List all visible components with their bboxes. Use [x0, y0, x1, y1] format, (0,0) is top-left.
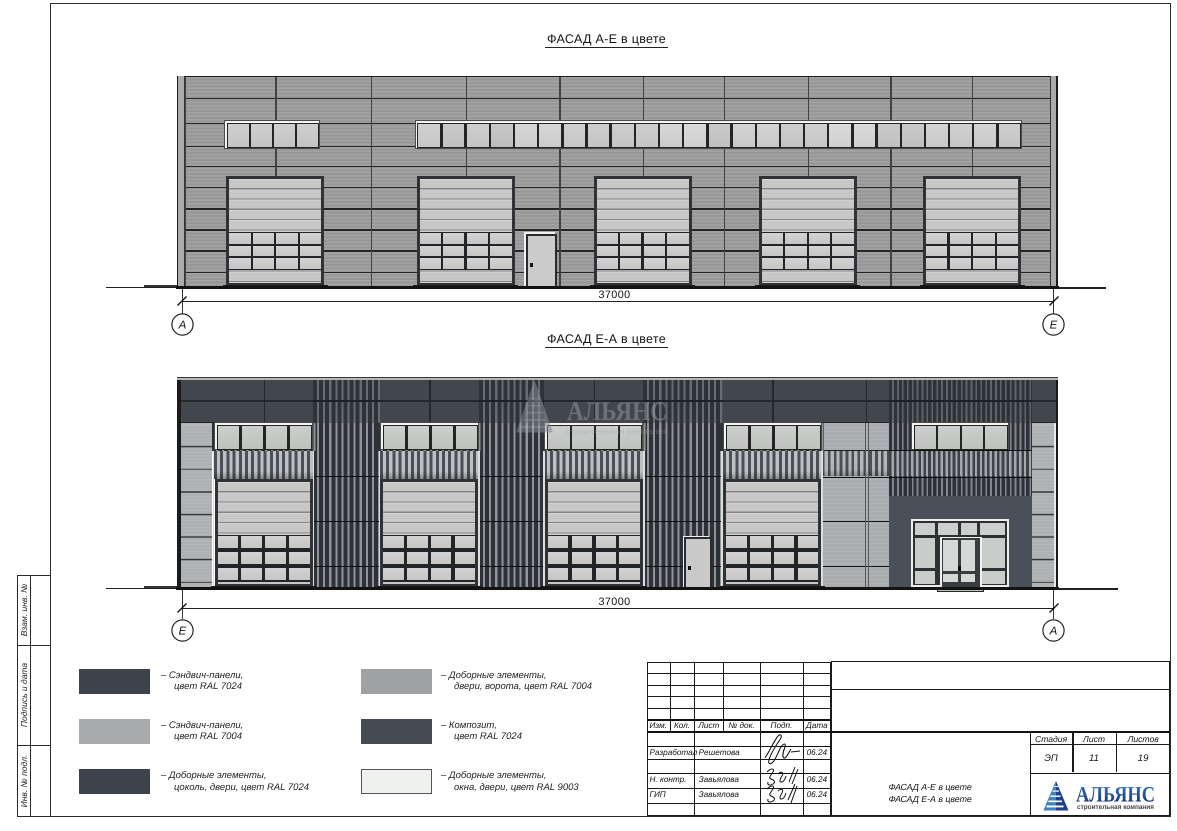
svg-text:строительная компания: строительная компания: [1077, 804, 1154, 811]
svg-text:А: А: [1049, 625, 1058, 637]
svg-text:АЛЬЯНС: АЛЬЯНС: [1076, 782, 1155, 807]
svg-text:А: А: [177, 320, 186, 332]
svg-text:Е: Е: [178, 625, 186, 637]
svg-text:АЛЬЯНС: АЛЬЯНС: [567, 396, 667, 426]
svg-text:строительная компания: строительная компания: [566, 427, 668, 436]
svg-text:Е: Е: [1050, 320, 1058, 332]
